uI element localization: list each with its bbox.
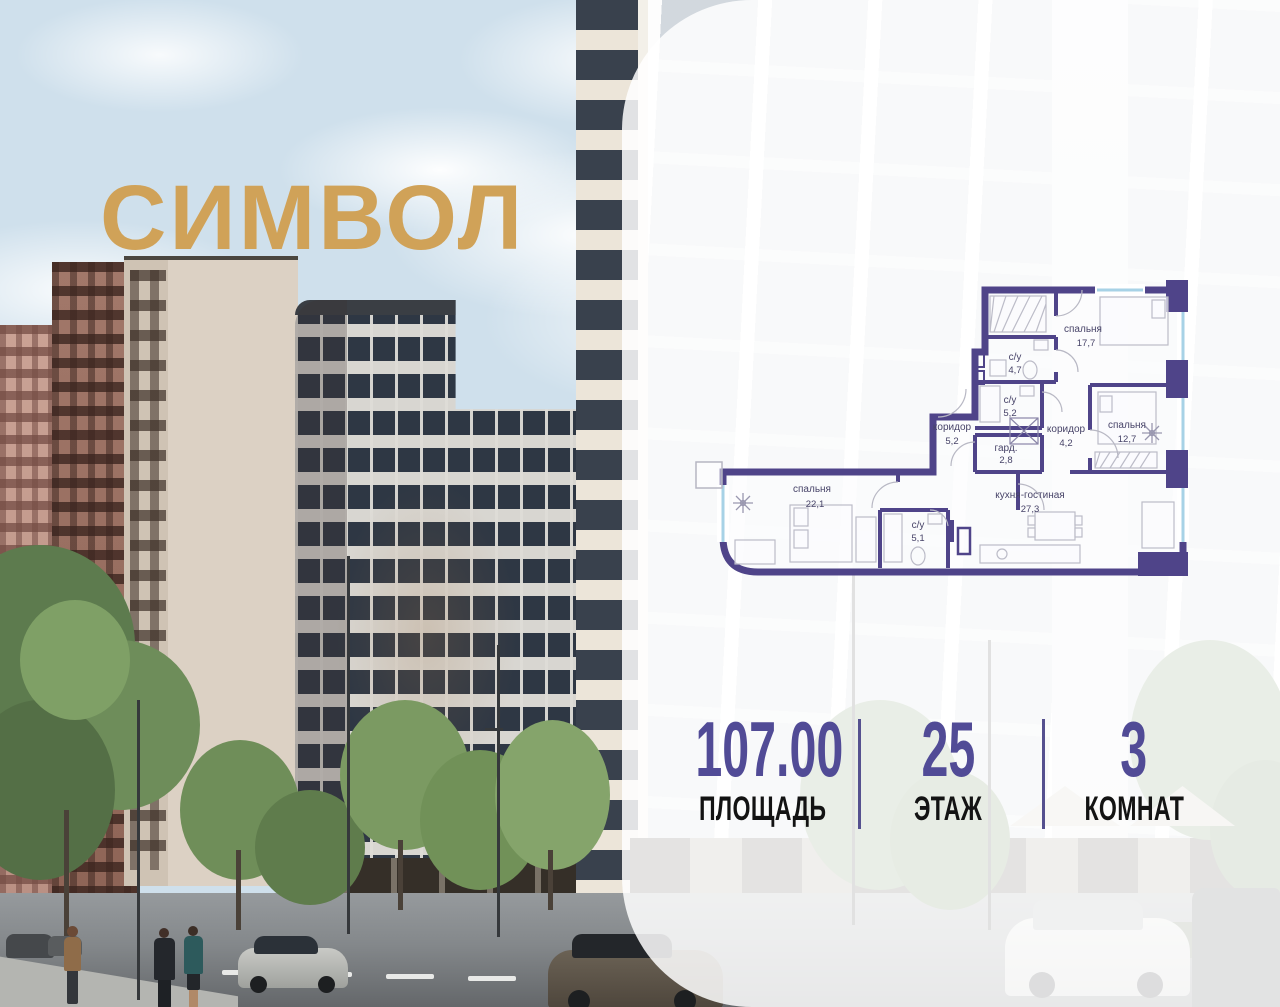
- room-label: спальня: [793, 484, 831, 495]
- listing-card: СИМВОЛ: [0, 0, 1280, 1007]
- pedestrian: [180, 926, 208, 1007]
- room-area: 5,1: [911, 533, 924, 544]
- room-label: с/у: [1004, 395, 1017, 406]
- tree-trunk: [398, 840, 403, 910]
- room-area: 5,2: [1003, 408, 1016, 419]
- room-area: 4,7: [1008, 365, 1021, 376]
- area-label: ПЛОЩАДЬ: [650, 792, 876, 826]
- room-area: 22,1: [806, 499, 825, 510]
- room-area: 12,7: [1118, 434, 1137, 445]
- room-label: гард.: [995, 443, 1018, 454]
- car-wheel: [318, 976, 335, 993]
- room-label: с/у: [1009, 352, 1022, 363]
- car-wheel: [250, 976, 267, 993]
- tree-trunk: [236, 850, 241, 930]
- room-area: 17,7: [1077, 338, 1096, 349]
- room-label: с/у: [912, 520, 925, 531]
- room-area: 2,8: [999, 455, 1012, 466]
- tree: [495, 720, 610, 870]
- floor-plan: спальня 17,7 с/у 4,7 с/у 5,2 коридор 5,2…: [690, 272, 1200, 590]
- room-area: 4,2: [1059, 438, 1072, 449]
- car-dark: [6, 934, 54, 958]
- rooms-value: 3: [1046, 710, 1222, 788]
- tree-trunk: [548, 850, 553, 910]
- room-label: коридор: [933, 422, 972, 433]
- stats-divider: [1042, 719, 1045, 829]
- stats-divider: [858, 719, 861, 829]
- room-area: 27,3: [1021, 504, 1040, 515]
- pedestrian: [150, 928, 180, 1007]
- street-lamp-arm: [485, 728, 503, 731]
- tree: [20, 600, 130, 720]
- pedestrian: [60, 926, 86, 1006]
- car-silver-sedan: [238, 948, 348, 988]
- street-pole: [347, 556, 350, 934]
- floor-value: 25: [862, 710, 1034, 788]
- lane-dash: [386, 974, 434, 979]
- room-label: кухня-гостиная: [995, 490, 1064, 501]
- rooms-label: КОМНАТ: [1046, 792, 1222, 826]
- room-label: спальня: [1064, 324, 1102, 335]
- car-wheel: [568, 990, 590, 1007]
- room-area: 5,2: [945, 436, 958, 447]
- area-value: 107.00: [650, 710, 876, 788]
- room-label: коридор: [1047, 424, 1086, 435]
- room-label: спальня: [1108, 420, 1146, 431]
- car-windows: [254, 936, 318, 954]
- lane-dash: [468, 976, 516, 981]
- street-pole: [137, 700, 140, 1000]
- street-pole: [497, 645, 500, 937]
- brand-logo: СИМВОЛ: [100, 172, 520, 264]
- floor-label: ЭТАЖ: [862, 792, 1034, 826]
